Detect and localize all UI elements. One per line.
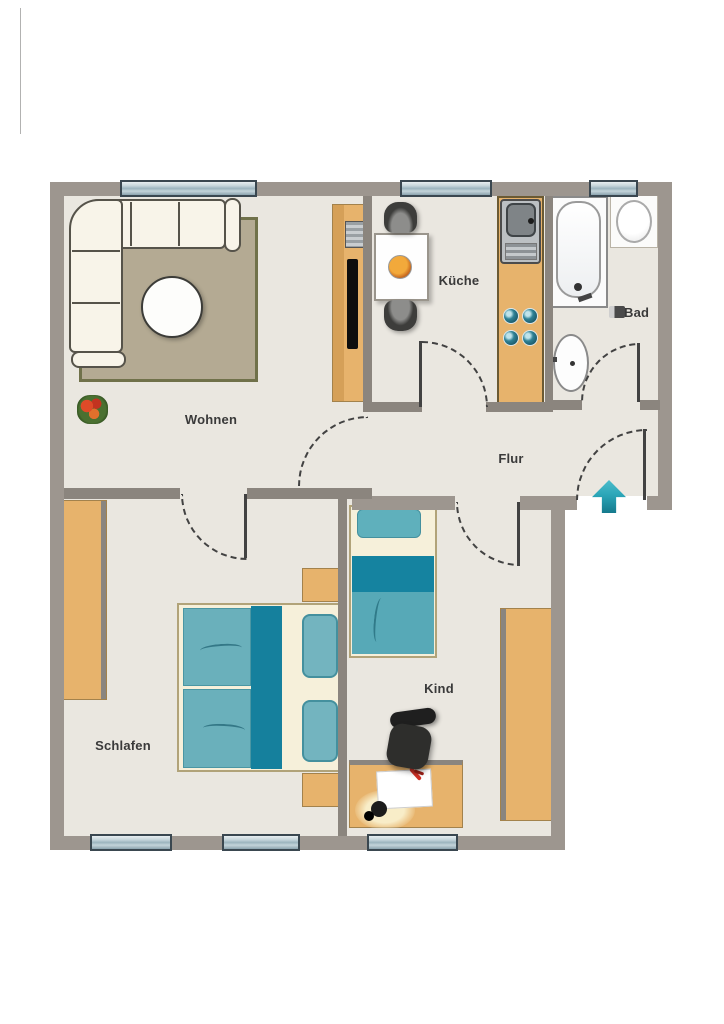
door-leaf-bad (637, 343, 640, 402)
room-label-kueche: Küche (419, 273, 499, 288)
single-bed-blanket-top (352, 556, 434, 592)
sofa-seam (72, 302, 120, 304)
room-label-bad: Bad (624, 305, 658, 320)
stove-burner (503, 308, 519, 324)
scan-artifact-line (20, 8, 21, 134)
chair-north (384, 202, 417, 233)
wardrobe-kind (500, 608, 552, 821)
sofa-armrest-right (224, 198, 241, 252)
washbasin-drain (570, 361, 575, 366)
room-label-kind: Kind (413, 681, 465, 696)
single-bed-pillow (357, 509, 421, 538)
sofa-seam (178, 202, 180, 246)
wall-schlafen-north-right (247, 488, 372, 499)
wall-schlafen-north-left (64, 488, 180, 499)
window-kueche (400, 180, 492, 197)
door-leaf-kind (517, 502, 520, 566)
window-bad (589, 180, 638, 197)
wall-right (658, 182, 672, 510)
tv-flatscreen (347, 259, 358, 349)
bed-pillow-upper (302, 614, 338, 678)
door-leaf-entry (643, 429, 646, 500)
stove-burner (522, 308, 538, 324)
stereo-unit (345, 221, 364, 248)
bed-blanket-stripe (251, 606, 282, 769)
door-leaf-kueche (419, 341, 422, 407)
window-schlafen-west (90, 834, 172, 851)
desk-lamp-knob (364, 811, 374, 821)
window-wohnen (120, 180, 257, 197)
wardrobe-schlafen (62, 500, 107, 700)
window-schlafen-east (222, 834, 300, 851)
wall-kueche-south (368, 402, 422, 412)
nightstand-south (302, 773, 340, 807)
sofa-seam (130, 202, 132, 246)
nightstand-north (302, 568, 340, 602)
floorplan: Wohnen Küche Bad Flur Schlafen Kind (0, 0, 724, 1024)
bathtub-drain (574, 283, 582, 291)
wall-counter-south (486, 402, 553, 412)
bed-pillow-lower (302, 700, 338, 762)
window-kind (367, 834, 458, 851)
dinner-plate (388, 255, 412, 279)
sofa-armrest-bottom (71, 351, 126, 368)
coffee-table-round (141, 276, 203, 338)
sofa-seam (72, 250, 120, 252)
room-label-schlafen: Schlafen (87, 738, 159, 753)
sink-faucet (528, 218, 534, 224)
wall-left (50, 182, 64, 850)
wall-kueche-bad (545, 196, 553, 412)
wall-bad-south-right (640, 400, 660, 410)
sink-drainer (505, 243, 537, 260)
wall-kind-east (551, 496, 565, 850)
room-label-wohnen: Wohnen (166, 412, 256, 427)
wall-wohnen-kueche (363, 196, 372, 412)
corner-sofa-vertical (69, 199, 123, 353)
radiator-icon (609, 306, 625, 318)
single-bed-blanket (352, 592, 434, 654)
chair-south (384, 300, 417, 331)
stove-burner (522, 330, 538, 346)
desk-chair-seat (385, 722, 434, 772)
door-leaf-schlafen (244, 494, 247, 558)
wall-flur-south-b (520, 496, 577, 510)
wall-flur-south-c (647, 496, 672, 510)
stove-burner (503, 330, 519, 346)
toilet-bowl (616, 200, 652, 243)
wall-schlafen-kind (338, 496, 347, 836)
plant (77, 395, 108, 424)
room-label-flur: Flur (486, 451, 536, 466)
wall-bad-south-left (553, 400, 582, 410)
